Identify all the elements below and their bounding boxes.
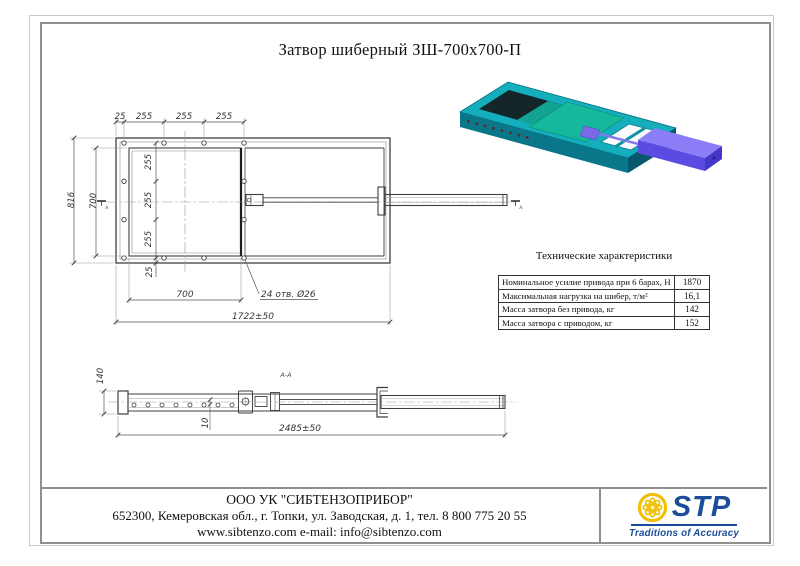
company-info: ООО УК "СИБТЕНЗОПРИБОР" 652300, Кемеровс… bbox=[40, 489, 601, 542]
side-bolt-holes bbox=[132, 403, 234, 407]
actuator-rod bbox=[246, 187, 507, 215]
dim-v255b: 255 bbox=[144, 192, 154, 208]
dim-total-1722: 1722±50 bbox=[232, 312, 274, 322]
dim-v255a: 255 bbox=[144, 154, 154, 170]
section-letter-right: А bbox=[519, 206, 523, 211]
stp-emblem-icon bbox=[637, 492, 668, 523]
front-dimensions bbox=[69, 118, 392, 325]
section-letter-left: А bbox=[105, 206, 109, 211]
spec-value: 142 bbox=[675, 303, 710, 317]
specs-section: Технические характеристики Номинальное у… bbox=[498, 250, 710, 330]
dim-top-25: 25 bbox=[115, 112, 126, 122]
company-web: www.sibtenzo.com e-mail: info@sibtenzo.c… bbox=[197, 524, 442, 540]
dim-v25: 25 bbox=[145, 267, 155, 278]
spec-row: Максимальная нагрузка на шибер, т/м² 16,… bbox=[499, 289, 710, 303]
section-title: А-А bbox=[279, 371, 291, 379]
spec-value: 16,1 bbox=[675, 289, 710, 303]
spec-label: Максимальная нагрузка на шибер, т/м² bbox=[499, 289, 675, 303]
logo-tagline: Traditions of Accuracy bbox=[629, 528, 739, 539]
spec-label: Номинальное усилие привода при 6 барах, … bbox=[499, 276, 675, 290]
spec-row: Номинальное усилие привода при 6 барах, … bbox=[499, 276, 710, 290]
front-view bbox=[97, 131, 520, 273]
dim-height-816: 816 bbox=[67, 191, 77, 208]
dim-bottom-700: 700 bbox=[176, 290, 193, 300]
bolt-holes bbox=[122, 141, 246, 260]
specs-title: Технические характеристики bbox=[498, 250, 710, 262]
dim-v255c: 255 bbox=[144, 231, 154, 247]
company-address: 652300, Кемеровская обл., г. Топки, ул. … bbox=[112, 508, 526, 524]
spec-label: Масса затвора без привода, кг bbox=[499, 303, 675, 317]
dim-top-255c: 255 bbox=[216, 112, 232, 122]
spec-label: Масса затвора с приводом, кг bbox=[499, 316, 675, 330]
spec-row: Масса затвора с приводом, кг 152 bbox=[499, 316, 710, 330]
dim-top-255b: 255 bbox=[176, 112, 192, 122]
spec-row: Масса затвора без привода, кг 142 bbox=[499, 303, 710, 317]
company-name: ООО УК "СИБТЕНЗОПРИБОР" bbox=[226, 492, 413, 508]
side-view bbox=[108, 388, 516, 418]
spec-value: 1870 bbox=[675, 276, 710, 290]
holes-note: 24 отв. Ø26 bbox=[261, 289, 316, 300]
spec-value: 152 bbox=[675, 316, 710, 330]
render-actuator bbox=[638, 128, 722, 171]
dim-side-140: 140 bbox=[96, 368, 106, 384]
dim-side-10: 10 bbox=[201, 418, 211, 429]
dim-height-700: 700 bbox=[89, 193, 99, 209]
render-3d bbox=[460, 82, 722, 173]
title-block: ООО УК "СИБТЕНЗОПРИБОР" 652300, Кемеровс… bbox=[40, 487, 767, 542]
dim-side-2485: 2485±50 bbox=[279, 424, 321, 434]
specs-table: Номинальное усилие привода при 6 барах, … bbox=[498, 275, 710, 330]
drawing-sheet: Затвор шиберный ЗШ-700х700-П bbox=[0, 0, 800, 566]
logo-rule bbox=[631, 524, 737, 527]
logo-text: STP bbox=[672, 493, 731, 522]
dim-top-255a: 255 bbox=[136, 112, 152, 122]
logo-block: STP Traditions of Accuracy bbox=[601, 489, 767, 542]
